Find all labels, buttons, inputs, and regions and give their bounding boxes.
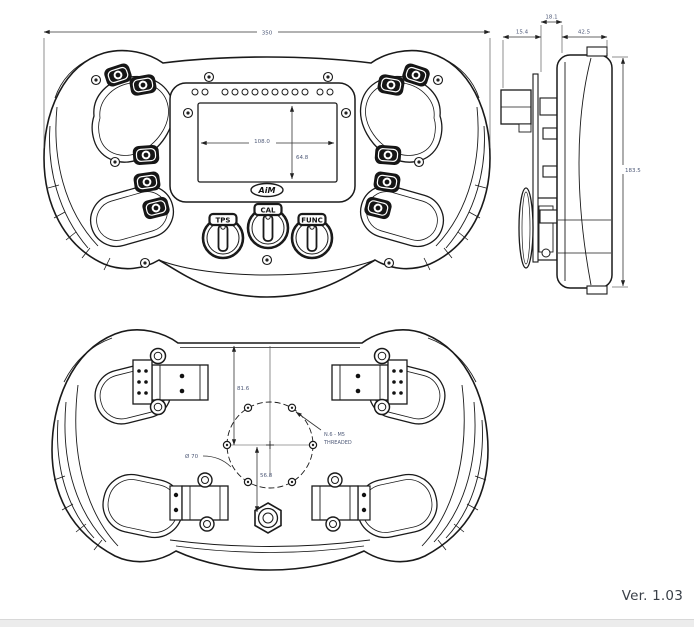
push-button — [133, 171, 161, 193]
rotary-label-cal: CAL — [260, 207, 276, 215]
threaded-hole — [244, 404, 251, 411]
side-connector — [501, 90, 531, 132]
push-button — [132, 145, 159, 166]
threaded-hole — [244, 478, 251, 485]
aim-logo: AiM — [251, 184, 283, 197]
front-left-grip — [48, 58, 180, 270]
mount-bracket-top — [133, 349, 208, 415]
screw-icon — [151, 349, 166, 364]
screw-icon — [324, 73, 333, 82]
front-right-grip — [354, 58, 486, 270]
rotary-label-func: FUNC — [301, 217, 322, 225]
mounting-pattern — [223, 346, 316, 533]
dim-bolt-circle: Ø 70 — [185, 453, 231, 467]
svg-text:42.5: 42.5 — [578, 30, 591, 36]
drawing-canvas: 108.0 64.8 AiM TPS — [0, 0, 694, 627]
screw-icon — [342, 109, 351, 118]
svg-text:Ø 70: Ø 70 — [185, 453, 199, 460]
svg-text:15.4: 15.4 — [516, 30, 529, 36]
thread-note-line1: N.6 - M5 — [324, 432, 345, 438]
screw-icon — [263, 256, 272, 265]
dim-height: 183.5 — [612, 57, 647, 287]
display-width-dim: 108.0 — [254, 139, 270, 145]
screw-icon — [151, 400, 166, 415]
threaded-hole — [288, 478, 295, 485]
svg-text:183.5: 183.5 — [625, 168, 641, 174]
dim-center-to-bottom: 56.8 — [257, 447, 273, 512]
thread-note: N.6 - M5 THREADED — [296, 412, 352, 446]
dim-plate-offset: 18.1 — [541, 15, 562, 54]
svg-text:56.8: 56.8 — [260, 473, 273, 479]
screw-icon — [198, 473, 212, 487]
screw-icon — [184, 109, 193, 118]
screw-icon — [141, 259, 150, 268]
side-mount-plate — [533, 74, 538, 262]
back-left-grip — [54, 338, 228, 550]
front-view-drawing: 108.0 64.8 AiM TPS — [30, 8, 504, 304]
rotary-switch-tps: TPS — [203, 214, 243, 258]
side-view-drawing: 15.4 18.1 42.5 183.5 — [495, 0, 694, 300]
screw-icon — [111, 158, 120, 167]
thread-note-line2: THREADED — [323, 440, 352, 446]
screw-icon — [92, 76, 101, 85]
svg-text:18.1: 18.1 — [545, 15, 557, 21]
screw-icon — [205, 73, 214, 82]
side-body — [557, 47, 612, 294]
front-center-panel: 108.0 64.8 AiM — [170, 73, 355, 203]
threaded-hole — [223, 441, 230, 448]
threaded-hole — [309, 441, 316, 448]
mount-bracket-bottom — [170, 473, 228, 531]
version-label: Ver. 1.03 — [622, 588, 683, 604]
center-hex-nut — [255, 503, 281, 533]
screw-icon — [200, 517, 214, 531]
push-button — [103, 62, 134, 88]
back-view-drawing: 81.6 56.8 Ø 70 N.6 - M5 THREADED — [30, 310, 510, 595]
side-paddle — [519, 188, 533, 268]
rotary-switch-cal: CAL — [248, 204, 288, 248]
svg-text:AiM: AiM — [258, 186, 276, 195]
bottom-page-edge — [0, 619, 694, 627]
dim-top-to-center: 81.6 — [234, 346, 250, 445]
display-height-dim: 64.8 — [296, 155, 309, 161]
rotary-switch-func: FUNC — [292, 214, 332, 258]
rotary-label-tps: TPS — [216, 217, 231, 225]
svg-text:81.6: 81.6 — [237, 386, 250, 392]
threaded-hole — [288, 404, 295, 411]
overall-width-dim: 350 — [262, 31, 273, 37]
